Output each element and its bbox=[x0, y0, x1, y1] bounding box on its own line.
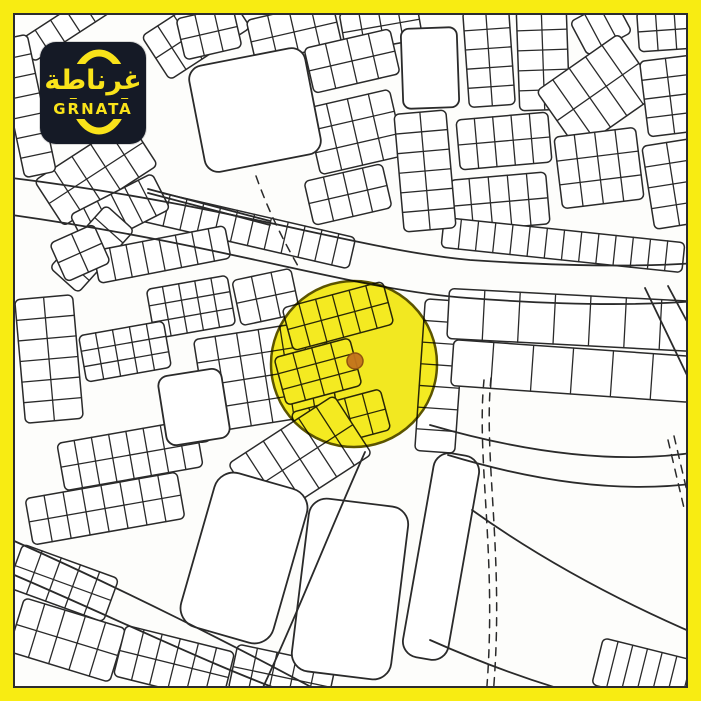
plot-block bbox=[640, 55, 701, 137]
plot-block bbox=[456, 112, 552, 170]
open-parcel bbox=[157, 367, 231, 446]
plot-block bbox=[554, 127, 644, 208]
plot-block bbox=[15, 295, 84, 424]
open-parcel bbox=[187, 46, 323, 175]
plot-block bbox=[394, 110, 456, 232]
open-parcel bbox=[401, 27, 460, 109]
plot-block bbox=[637, 8, 696, 52]
open-parcel bbox=[290, 497, 410, 682]
logo-latin-wordmark: GRNATA bbox=[40, 99, 146, 119]
grnata-logo: غرناطة GRNATA bbox=[40, 42, 146, 144]
logo-arabic-wordmark: غرناطة bbox=[40, 64, 146, 98]
location-marker-dot bbox=[347, 353, 363, 369]
plot-block bbox=[463, 9, 516, 108]
